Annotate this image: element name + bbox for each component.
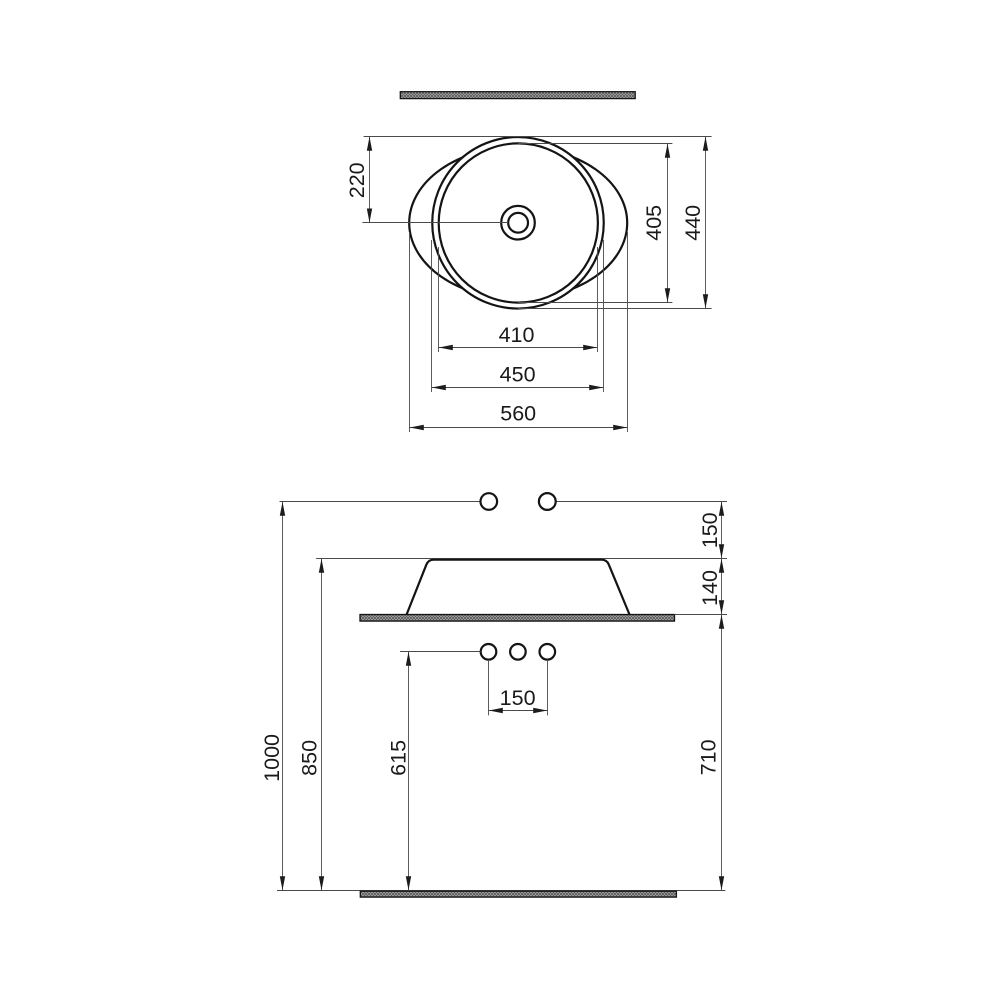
svg-text:140: 140 [698, 570, 722, 606]
svg-text:220: 220 [345, 162, 369, 198]
svg-text:410: 410 [499, 323, 535, 347]
svg-text:440: 440 [681, 205, 705, 241]
svg-text:710: 710 [697, 739, 721, 775]
svg-text:560: 560 [500, 401, 536, 425]
svg-text:450: 450 [500, 362, 536, 386]
svg-text:615: 615 [386, 740, 410, 776]
svg-text:850: 850 [298, 740, 322, 776]
svg-text:405: 405 [642, 205, 666, 241]
svg-text:150: 150 [500, 686, 536, 710]
svg-text:150: 150 [698, 512, 722, 548]
svg-text:1000: 1000 [260, 734, 284, 782]
